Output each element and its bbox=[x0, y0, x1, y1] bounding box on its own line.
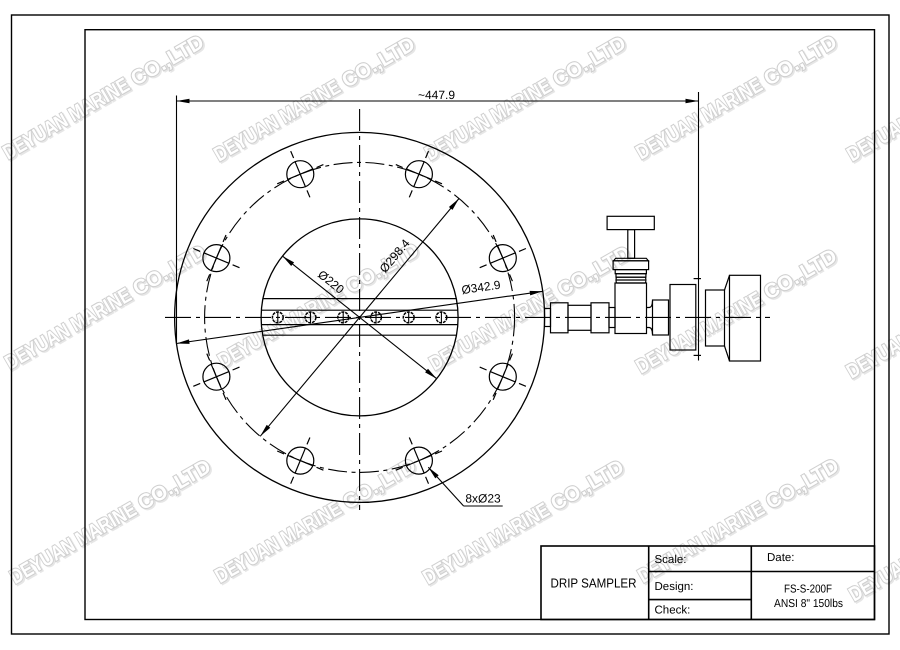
svg-text:~447.9: ~447.9 bbox=[418, 88, 455, 102]
svg-text:8xØ23: 8xØ23 bbox=[465, 492, 501, 506]
svg-text:Scale:: Scale: bbox=[655, 554, 687, 566]
svg-text:Date:: Date: bbox=[767, 552, 795, 564]
svg-text:DRIP SAMPLER: DRIP SAMPLER bbox=[551, 576, 637, 591]
svg-text:FS-S-200F: FS-S-200F bbox=[784, 584, 832, 596]
svg-text:Design:: Design: bbox=[655, 581, 694, 593]
svg-text:ANSI 8" 150lbs: ANSI 8" 150lbs bbox=[774, 598, 843, 610]
svg-text:Check:: Check: bbox=[655, 605, 691, 617]
